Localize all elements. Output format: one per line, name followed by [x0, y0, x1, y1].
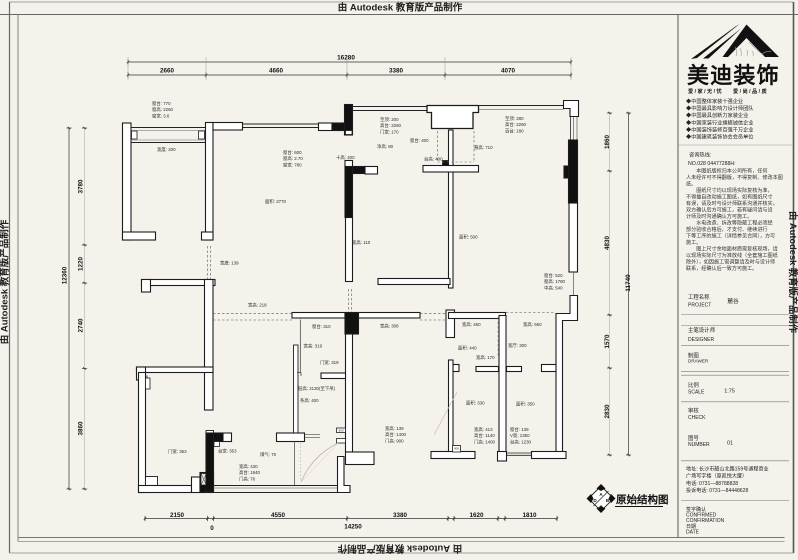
svg-text:窗宽: 3.6: 窗宽: 3.6 [152, 112, 170, 119]
svg-text:悬高: 710: 悬高: 710 [474, 144, 493, 151]
svg-text:主笔设计师: 主笔设计师 [688, 326, 716, 334]
svg-text:◆中国装饰装修百强千万企业: ◆中国装饰装修百强千万企业 [686, 125, 753, 133]
svg-text:16280: 16280 [337, 55, 355, 62]
svg-text:联系，经确认后一致方可施工。: 联系，经确认后一致方可施工。 [686, 265, 757, 272]
svg-text:由 Autodesk 教育版产品制作: 由 Autodesk 教育版产品制作 [0, 219, 11, 344]
svg-text:比例: 比例 [688, 381, 699, 389]
svg-text:4550: 4550 [271, 512, 286, 519]
svg-text:至顶: 280: 至顶: 280 [505, 116, 524, 122]
svg-text:宽高: 218: 宽高: 218 [248, 302, 267, 309]
svg-text:宽度: 139: 宽度: 139 [220, 260, 239, 267]
svg-text:工程名称: 工程名称 [688, 293, 710, 301]
svg-text:净高: 80: 净高: 80 [377, 143, 394, 150]
svg-text:水电改造、拆改等隐蔽工程必须经: 水电改造、拆改等隐蔽工程必须经 [686, 220, 773, 227]
svg-text:由 Autodesk 教育版产品制作: 由 Autodesk 教育版产品制作 [788, 211, 798, 334]
svg-text:地址: 长沙市韶山北路159号通程商业: 地址: 长沙市韶山北路159号通程商业 [686, 466, 769, 473]
svg-text:门宽: 353: 门宽: 353 [168, 448, 187, 455]
svg-text:宽高: 430: 宽高: 430 [239, 463, 258, 470]
svg-text:900: 900 [338, 429, 343, 433]
svg-text:2830: 2830 [604, 404, 611, 419]
svg-text:窗高: 1780: 窗高: 1780 [544, 278, 566, 285]
svg-text:面积: 500: 面积: 500 [459, 234, 478, 241]
svg-text:门高: 900: 门高: 900 [385, 437, 404, 444]
svg-text:900: 900 [454, 447, 459, 451]
svg-text:宽高: 308: 宽高: 308 [380, 323, 399, 330]
svg-text:下等工序的施工（详情参见合同），方可: 下等工序的施工（详情参见合同），方可 [686, 233, 775, 240]
svg-text:高台: 2260: 高台: 2260 [505, 121, 527, 128]
svg-text:窗台: 400: 窗台: 400 [410, 137, 429, 144]
svg-text:门高: 1400: 门高: 1400 [474, 438, 496, 445]
svg-text:窗台: 139: 窗台: 139 [510, 426, 529, 433]
svg-text:审核: 审核 [688, 407, 699, 415]
svg-text:美迪装饰: 美迪装饰 [687, 63, 780, 88]
svg-text:门高: 76: 门高: 76 [239, 475, 256, 482]
svg-text:11740: 11740 [625, 274, 632, 292]
svg-text:高台: 1140: 高台: 1140 [474, 432, 495, 439]
svg-text:部分验收合格后，才支付、继续进行: 部分验收合格后，才支付、继续进行 [686, 226, 768, 233]
svg-text:十高: 400: 十高: 400 [336, 154, 355, 161]
svg-text:宽高: 460: 宽高: 460 [462, 321, 481, 328]
svg-text:爱 / 尚 / 品 / 质: 爱 / 尚 / 品 / 质 [733, 87, 768, 95]
svg-text:2150: 2150 [170, 512, 185, 519]
svg-text:◆中国最具创新力家装企业: ◆中国最具创新力家装企业 [686, 111, 748, 119]
svg-text:01: 01 [727, 440, 733, 446]
svg-text:3380: 3380 [389, 68, 404, 75]
svg-text:高台: 2260: 高台: 2260 [380, 122, 402, 129]
svg-text:爱 / 家 / 无 / 忧: 爱 / 家 / 无 / 忧 [688, 87, 723, 95]
svg-text:◆中国家装行业旗舰诚信企业: ◆中国家装行业旗舰诚信企业 [686, 118, 753, 126]
svg-text:门宽: 319: 门宽: 319 [320, 359, 339, 366]
svg-text:2660: 2660 [160, 68, 175, 75]
svg-text:宽厅: 300: 宽厅: 300 [508, 342, 527, 349]
svg-text:原始结构图: 原始结构图 [616, 493, 669, 506]
svg-text:煤气: 70: 煤气: 70 [260, 451, 277, 458]
svg-text:高台: 1400: 高台: 1400 [385, 431, 407, 438]
svg-text:投诉电话: 0731—84448628: 投诉电话: 0731—84448628 [686, 487, 748, 494]
svg-text:纸。: 纸。 [686, 181, 696, 188]
svg-text:DESIGNER: DESIGNER [688, 337, 715, 343]
svg-text:窗台: 520: 窗台: 520 [544, 272, 563, 279]
svg-text:宽高: 110: 宽高: 110 [352, 239, 371, 246]
svg-text:宽高: 319: 宽高: 319 [304, 343, 323, 350]
svg-text:1860: 1860 [604, 135, 611, 150]
svg-text:窗台: 310: 窗台: 310 [312, 323, 331, 330]
svg-text:台高: 1230: 台高: 1230 [510, 438, 532, 445]
svg-text:◆中国整体家装十强企业: ◆中国整体家装十强企业 [686, 97, 743, 105]
svg-text:窗台: 770: 窗台: 770 [152, 100, 171, 107]
svg-text:3380: 3380 [393, 512, 408, 519]
svg-text:台宽: 353: 台宽: 353 [218, 448, 237, 455]
svg-text:面积: 440: 面积: 440 [458, 345, 477, 352]
svg-text:4070: 4070 [501, 68, 516, 75]
svg-text:1620: 1620 [469, 512, 484, 519]
svg-text:台高: 400: 台高: 400 [424, 156, 443, 163]
svg-text:1:75: 1:75 [724, 389, 735, 395]
svg-text:计师及时沟通确认方可施工。: 计师及时沟通确认方可施工。 [686, 213, 752, 220]
svg-text:至顶: 200: 至顶: 200 [380, 117, 399, 123]
svg-text:图号: 图号 [688, 434, 699, 442]
svg-text:电话: 0731—88788828: 电话: 0731—88788828 [686, 480, 738, 487]
svg-text:条高: 400: 条高: 400 [300, 397, 319, 404]
svg-text:除外），如因施工需调整请及时与设计师: 除外），如因施工需调整请及时与设计师 [686, 259, 775, 266]
svg-text:施工。: 施工。 [686, 239, 701, 246]
svg-text:不得擅自改动施工图纸，如有图纸尺寸: 不得擅自改动施工图纸，如有图纸尺寸 [686, 194, 773, 201]
svg-text:DATE: DATE [686, 529, 700, 535]
svg-text:有误，请及时与设计师联系沟通并核实，: 有误，请及时与设计师联系沟通并核实， [686, 200, 778, 207]
svg-text:NUMBER: NUMBER [688, 442, 710, 448]
svg-text:门宽: 170: 门宽: 170 [380, 128, 399, 135]
svg-text:宽度: 200: 宽度: 200 [157, 146, 176, 153]
svg-text:14250: 14250 [344, 524, 362, 531]
svg-text:面积: 350: 面积: 350 [516, 401, 535, 408]
svg-text:麓谷: 麓谷 [727, 297, 739, 305]
svg-text:本图纸版权归本公司所有，任何: 本图纸版权归本公司所有，任何 [686, 168, 768, 175]
svg-text:双方确认后方可施工，若有疑问请与设: 双方确认后方可施工，若有疑问请与设 [686, 207, 773, 214]
svg-text:CHECK: CHECK [688, 415, 706, 421]
svg-text:人未经许可不得翻版，不得复制、修改本图: 人未经许可不得翻版，不得复制、修改本图 [686, 174, 783, 181]
svg-text:由 Autodesk 教育版产品制作: 由 Autodesk 教育版产品制作 [338, 2, 463, 14]
svg-text:宽高: 413: 宽高: 413 [474, 426, 493, 433]
svg-text:以现场实际尺寸为准放线（全套施工图纸: 以现场实际尺寸为准放线（全套施工图纸 [686, 252, 778, 259]
svg-text:3860: 3860 [78, 421, 85, 436]
svg-text:4830: 4830 [604, 236, 611, 251]
svg-text:窗宽: 780: 窗宽: 780 [283, 161, 302, 168]
svg-text:面积: 330: 面积: 330 [466, 400, 485, 407]
svg-text:2740: 2740 [78, 318, 85, 333]
svg-text:窗高: 2.70: 窗高: 2.70 [283, 155, 303, 162]
svg-text:窗台: 600: 窗台: 600 [283, 149, 302, 156]
svg-text:1810: 1810 [522, 512, 537, 519]
svg-text:图纸尺寸均以现场实际复核为准，: 图纸尺寸均以现场实际复核为准， [686, 187, 773, 194]
svg-text:DRAWER: DRAWER [688, 359, 709, 364]
svg-text:宽高: 660: 宽高: 660 [523, 321, 542, 328]
svg-text:中高: 540: 中高: 540 [544, 284, 563, 291]
svg-text:由 Autodesk 教育版产品制作: 由 Autodesk 教育版产品制作 [337, 543, 462, 555]
svg-text:层高: 2130(至下吊): 层高: 2130(至下吊) [298, 385, 336, 392]
svg-text:广场写字楼（原凯悦大厦）: 广场写字楼（原凯悦大厦） [686, 473, 747, 480]
svg-text:1220: 1220 [78, 257, 85, 272]
svg-text:面积: 2770: 面积: 2770 [265, 198, 287, 205]
svg-text:宽高: 170: 宽高: 170 [476, 354, 495, 361]
svg-text:0: 0 [210, 525, 214, 532]
svg-text:PROJECT: PROJECT [688, 303, 711, 309]
svg-text:4660: 4660 [269, 68, 284, 75]
svg-text:◆中国建筑装饰协会会员单位: ◆中国建筑装饰协会会员单位 [686, 133, 753, 141]
svg-text:◆中国最具影响力设计师团队: ◆中国最具影响力设计师团队 [686, 104, 754, 112]
svg-text:NO.028 04477288H:: NO.028 04477288H: [688, 161, 736, 167]
svg-text:宽高: 139: 宽高: 139 [385, 425, 404, 432]
svg-text:12360: 12360 [62, 266, 69, 284]
svg-text:SCALE: SCALE [688, 390, 705, 396]
svg-text:高台: 1940: 高台: 1940 [239, 469, 261, 476]
svg-text:3780: 3780 [78, 179, 85, 194]
svg-text:窗高: 2260: 窗高: 2260 [152, 106, 174, 113]
svg-text:百台: 180: 百台: 180 [505, 127, 524, 134]
svg-text:咨询热线:: 咨询热线: [689, 151, 711, 159]
svg-text:V宽: 1350: V宽: 1350 [510, 432, 530, 439]
svg-text:图上尺寸余地面材质需复核现场，请: 图上尺寸余地面材质需复核现场，请 [686, 246, 778, 253]
svg-text:1570: 1570 [604, 334, 611, 349]
